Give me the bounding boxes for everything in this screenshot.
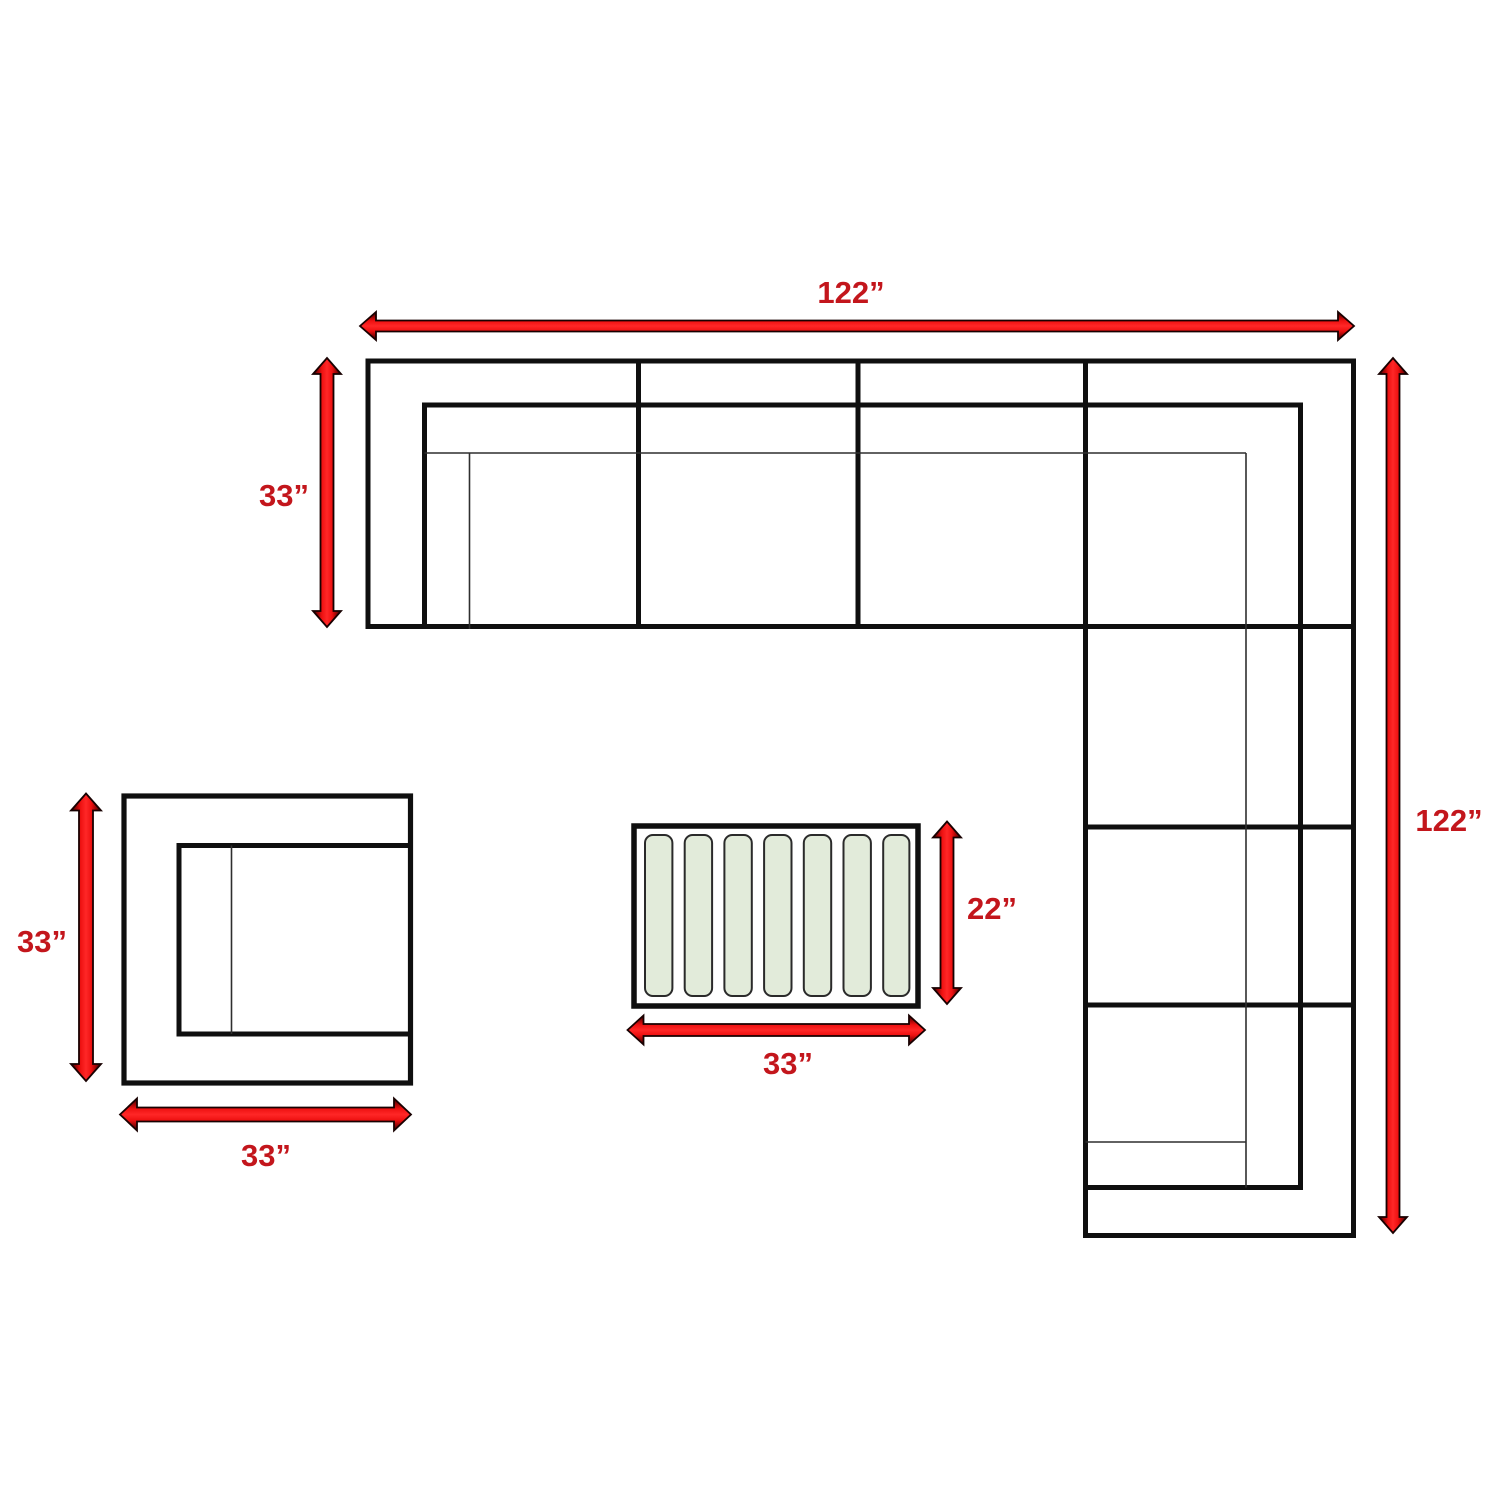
svg-text:122”: 122” (1415, 803, 1482, 838)
svg-text:122”: 122” (817, 275, 884, 310)
svg-text:33”: 33” (259, 478, 309, 513)
svg-text:22”: 22” (967, 891, 1017, 926)
svg-text:33”: 33” (763, 1046, 813, 1081)
svg-text:33”: 33” (17, 924, 67, 959)
svg-text:33”: 33” (241, 1138, 291, 1173)
